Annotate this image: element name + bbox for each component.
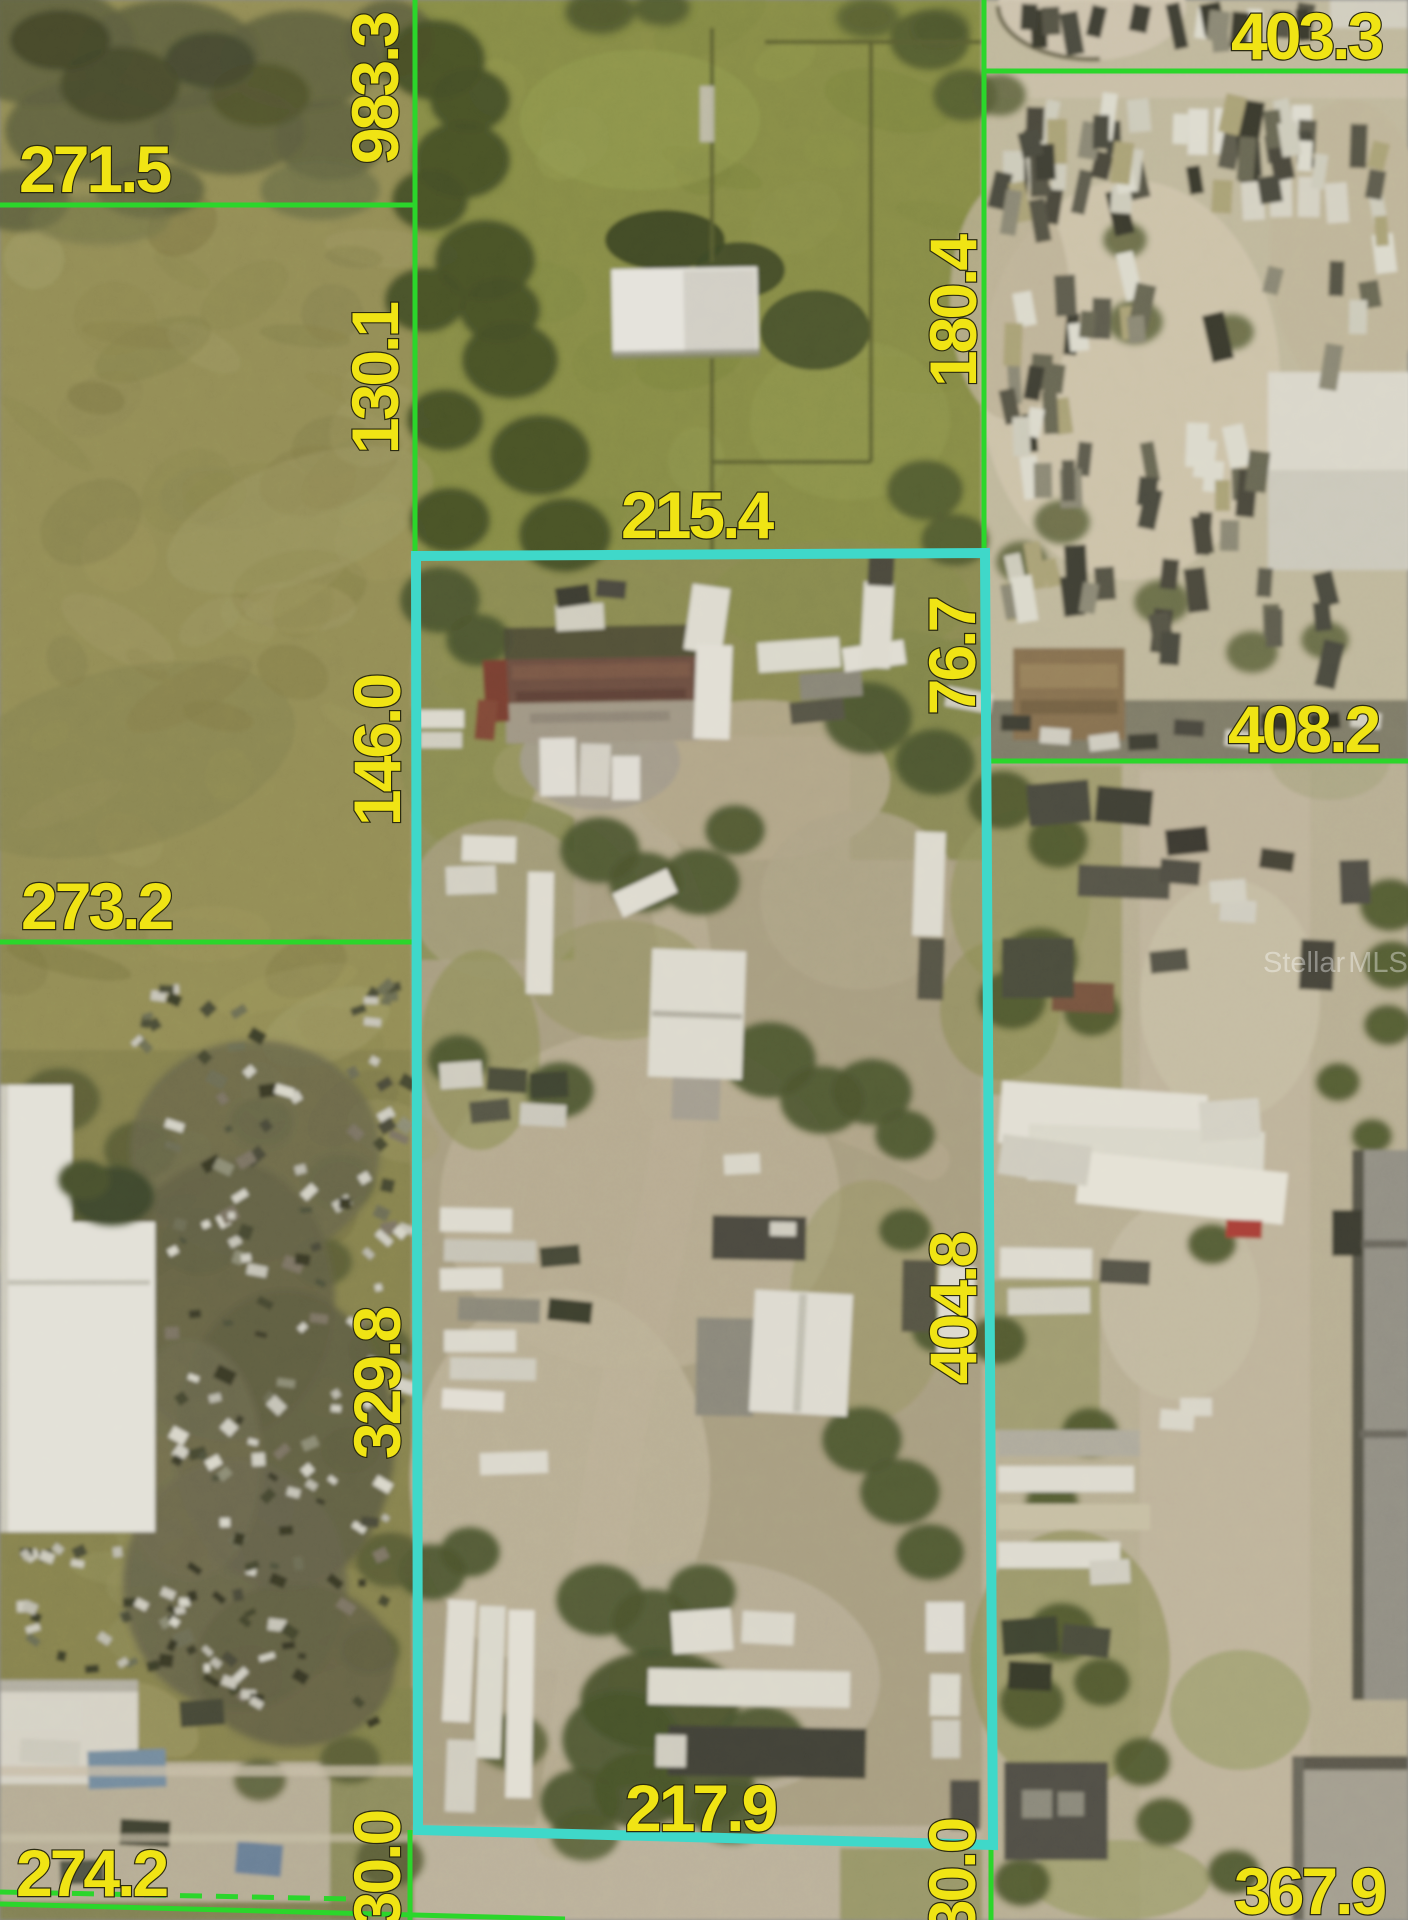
svg-text:403.3: 403.3 — [1231, 0, 1382, 73]
svg-text:217.9: 217.9 — [625, 1771, 776, 1845]
svg-text:271.5: 271.5 — [19, 132, 170, 206]
svg-text:215.4: 215.4 — [621, 478, 774, 552]
svg-text:404.8: 404.8 — [916, 1233, 990, 1384]
svg-text:76.7: 76.7 — [915, 598, 989, 715]
svg-text:983.3: 983.3 — [338, 13, 412, 164]
svg-text:146.0: 146.0 — [340, 676, 414, 826]
svg-text:329.8: 329.8 — [340, 1308, 414, 1459]
svg-text:30.0: 30.0 — [915, 1819, 989, 1920]
svg-text:274.2: 274.2 — [16, 1836, 167, 1910]
svg-text:367.9: 367.9 — [1234, 1854, 1385, 1920]
svg-text:StellarMLS: StellarMLS — [1263, 947, 1408, 979]
svg-text:408.2: 408.2 — [1228, 692, 1379, 766]
svg-text:130.1: 130.1 — [338, 303, 412, 454]
svg-text:30.0: 30.0 — [340, 1811, 414, 1920]
svg-text:180.4: 180.4 — [916, 234, 990, 387]
svg-text:273.2: 273.2 — [21, 869, 172, 943]
